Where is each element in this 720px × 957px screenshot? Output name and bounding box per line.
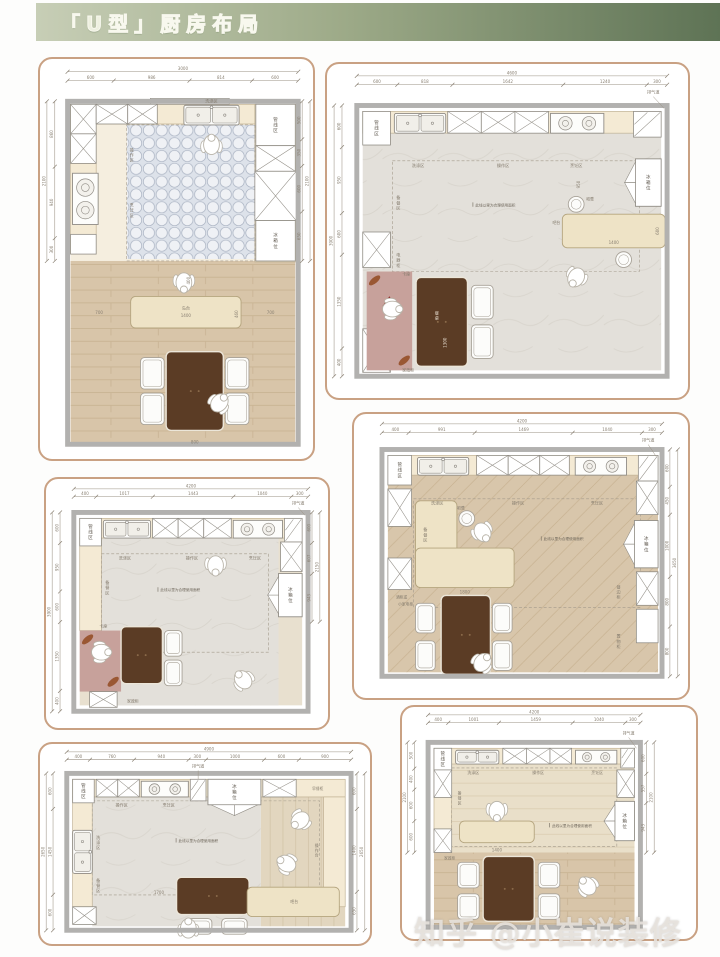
floor-plan-card-2: 管线区冰箱位4600600818164212403003900600950600…: [325, 62, 690, 400]
svg-text:洗涤区: 洗涤区: [205, 97, 217, 103]
svg-text:700: 700: [95, 310, 103, 315]
svg-text:管线区: 管线区: [441, 750, 446, 768]
svg-text:操作台: 操作台: [315, 843, 319, 858]
svg-text:600: 600: [664, 464, 669, 472]
svg-text:991: 991: [438, 427, 446, 432]
svg-text:2100: 2100: [649, 792, 654, 803]
svg-text:1350: 1350: [336, 296, 341, 307]
svg-text:4900: 4900: [204, 746, 215, 751]
floor-plan-5-svg: 管线区冰箱位4900400760940300100060090026506001…: [40, 744, 370, 944]
svg-text:1450: 1450: [47, 846, 52, 857]
svg-text:吧凳: 吧凳: [586, 196, 594, 201]
svg-text:450: 450: [664, 496, 669, 504]
svg-text:3000: 3000: [178, 66, 189, 71]
svg-text:操作区: 操作区: [532, 770, 544, 775]
svg-text:排气道: 排气道: [623, 731, 635, 736]
svg-text:400: 400: [75, 754, 83, 759]
svg-text:2650: 2650: [359, 846, 364, 857]
svg-text:400: 400: [54, 697, 59, 705]
svg-text:备餐区: 备餐区: [96, 877, 100, 893]
svg-text:置物柜: 置物柜: [617, 633, 621, 649]
svg-text:1000: 1000: [230, 754, 241, 759]
svg-text:3900: 3900: [328, 235, 333, 246]
svg-text:650: 650: [297, 232, 302, 240]
svg-text:烹饪区: 烹饪区: [591, 770, 603, 775]
svg-text:600: 600: [306, 523, 311, 531]
svg-text:500: 500: [409, 751, 414, 759]
watermark: 知乎 @小崔说装修: [414, 908, 682, 953]
svg-text:冰箱位: 冰箱位: [644, 535, 649, 553]
floor-plan-6-svg: 管线区冰箱位4200400100114591040300210050040060…: [402, 707, 696, 939]
svg-text:3900: 3900: [47, 606, 52, 617]
svg-text:400: 400: [391, 427, 399, 432]
svg-text:700: 700: [267, 310, 275, 315]
svg-text:600: 600: [641, 754, 646, 762]
svg-text:家政柜: 家政柜: [402, 367, 414, 372]
svg-text:吧台: 吧台: [290, 899, 298, 904]
svg-text:排气道: 排气道: [647, 89, 659, 95]
svg-text:岛台: 岛台: [182, 304, 190, 310]
svg-text:冰箱位: 冰箱位: [273, 232, 278, 250]
svg-text:800: 800: [191, 439, 199, 444]
svg-text:小家电柜: 小家电柜: [398, 601, 413, 606]
svg-text:此线以里为合理使用面积: 此线以里为合理使用面积: [160, 587, 200, 592]
svg-text:1350: 1350: [54, 651, 59, 662]
svg-text:备餐区: 备餐区: [105, 579, 109, 595]
svg-text:1001: 1001: [468, 717, 479, 722]
svg-text:冰箱位: 冰箱位: [232, 783, 237, 801]
svg-text:1017: 1017: [119, 491, 130, 496]
svg-text:冰箱位: 冰箱位: [288, 586, 293, 604]
svg-text:400: 400: [409, 775, 414, 783]
svg-text:460: 460: [234, 310, 239, 318]
svg-text:卡座: 卡座: [402, 271, 410, 276]
svg-text:860: 860: [49, 130, 54, 138]
svg-text:3650: 3650: [672, 557, 677, 568]
floor-plan-card-5: 管线区冰箱位4900400760940300100060090026506001…: [38, 742, 372, 946]
floor-plan-2-svg: 管线区冰箱位4600600818164212403003900600950600…: [327, 64, 688, 398]
svg-text:操作区: 操作区: [512, 500, 524, 506]
svg-text:300: 300: [49, 245, 54, 253]
svg-text:1459: 1459: [531, 717, 542, 722]
floor-plan-card-1: 管线区冰箱位3000600986814600210086094030050035…: [38, 57, 315, 461]
svg-text:400: 400: [434, 717, 442, 722]
svg-text:4200: 4200: [186, 483, 197, 488]
floor-plan-card-6: 管线区冰箱位4200400100114591040300210050040060…: [400, 705, 698, 941]
svg-text:940: 940: [158, 754, 166, 759]
svg-text:500: 500: [297, 116, 302, 124]
svg-text:600: 600: [87, 75, 95, 80]
svg-text:800: 800: [664, 647, 669, 655]
svg-text:此线以里为合理使用面积: 此线以里为合理使用面积: [475, 202, 515, 207]
svg-text:950: 950: [336, 176, 341, 184]
svg-text:管线区: 管线区: [397, 461, 402, 479]
svg-text:管线区: 管线区: [88, 523, 93, 541]
svg-text:2650: 2650: [41, 846, 46, 857]
svg-text:1469: 1469: [519, 427, 530, 432]
svg-text:洗涤区: 洗涤区: [431, 500, 443, 506]
svg-text:600: 600: [271, 75, 279, 80]
svg-text:家政柜: 家政柜: [444, 855, 455, 860]
svg-text:洗涤区: 洗涤区: [467, 770, 479, 775]
svg-text:600: 600: [409, 832, 414, 840]
svg-text:600: 600: [47, 787, 52, 795]
svg-text:操作区: 操作区: [497, 162, 509, 168]
svg-text:300: 300: [648, 427, 656, 432]
svg-text:600: 600: [54, 602, 59, 610]
svg-text:吧凳: 吧凳: [457, 506, 465, 511]
svg-text:烹饪区: 烹饪区: [591, 500, 603, 506]
svg-text:此线以里为合理使用面积: 此线以里为合理使用面积: [179, 838, 219, 843]
svg-text:650: 650: [351, 907, 356, 915]
floor-plan-3-svg: 管线区冰箱位4200400101714431040300390060095060…: [46, 479, 328, 728]
svg-text:940: 940: [49, 198, 54, 206]
svg-text:900: 900: [321, 754, 329, 759]
svg-text:600: 600: [655, 227, 660, 235]
floor-plan-1-svg: 管线区冰箱位3000600986814600210086094030050035…: [40, 59, 313, 459]
svg-text:400: 400: [336, 358, 341, 366]
svg-text:557: 557: [641, 784, 646, 792]
svg-text:760: 760: [108, 754, 116, 759]
svg-text:600: 600: [278, 754, 286, 759]
svg-text:1400: 1400: [492, 848, 503, 853]
svg-text:备餐区: 备餐区: [458, 791, 462, 806]
svg-text:烹饪区: 烹饪区: [570, 162, 582, 168]
svg-text:卡座: 卡座: [99, 624, 107, 629]
svg-text:烹饪区: 烹饪区: [163, 802, 175, 808]
svg-text:此线以里为合理使用面积: 此线以里为合理使用面积: [552, 823, 592, 828]
floor-plan-4-svg: 管线区冰箱位4200400991146910403006004501000800…: [354, 414, 688, 698]
svg-text:986: 986: [148, 75, 156, 80]
svg-text:洗涤区: 洗涤区: [96, 834, 100, 850]
svg-text:607: 607: [306, 554, 311, 562]
svg-text:冰箱位: 冰箱位: [622, 812, 627, 830]
svg-text:排气道: 排气道: [292, 500, 304, 506]
svg-text:1700: 1700: [154, 890, 165, 895]
svg-text:管线区: 管线区: [273, 116, 278, 134]
svg-text:洗涤区: 洗涤区: [119, 555, 131, 561]
svg-text:600: 600: [336, 122, 341, 130]
svg-text:950: 950: [54, 563, 59, 571]
svg-text:300: 300: [653, 79, 661, 84]
svg-text:818: 818: [421, 79, 429, 84]
svg-text:1240: 1240: [600, 79, 611, 84]
svg-text:1400: 1400: [181, 313, 192, 318]
svg-text:814: 814: [217, 75, 225, 80]
svg-text:400: 400: [186, 276, 191, 284]
svg-text:排气道: 排气道: [642, 437, 654, 443]
svg-text:800: 800: [664, 597, 669, 605]
floor-plan-card-3: 管线区冰箱位4200400101714431040300390060095060…: [44, 477, 330, 730]
svg-text:管线区: 管线区: [81, 782, 86, 800]
svg-text:350: 350: [297, 148, 302, 156]
svg-text:300: 300: [629, 717, 637, 722]
svg-text:早餐柜: 早餐柜: [312, 786, 323, 791]
svg-text:1040: 1040: [594, 717, 605, 722]
svg-text:600: 600: [336, 230, 341, 238]
svg-text:943: 943: [641, 823, 646, 831]
svg-text:950: 950: [576, 180, 581, 188]
svg-text:此线以里为合理使用面积: 此线以里为合理使用面积: [544, 536, 584, 541]
svg-text:1000: 1000: [664, 540, 669, 551]
svg-text:家政柜: 家政柜: [127, 698, 139, 703]
svg-text:1300: 1300: [443, 337, 448, 348]
svg-text:2100: 2100: [304, 176, 309, 187]
svg-text:600: 600: [409, 801, 414, 809]
svg-text:1443: 1443: [188, 491, 199, 496]
svg-text:600: 600: [351, 787, 356, 795]
svg-text:吧台: 吧台: [552, 220, 560, 225]
svg-text:1040: 1040: [257, 491, 268, 496]
svg-text:备餐区: 备餐区: [423, 526, 427, 542]
svg-text:600: 600: [297, 184, 302, 192]
svg-text:1642: 1642: [503, 79, 514, 84]
svg-text:300: 300: [193, 754, 201, 759]
svg-text:4600: 4600: [507, 70, 518, 75]
svg-text:1040: 1040: [602, 427, 613, 432]
floor-plan-card-4: 管线区冰箱位4200400991146910403006004501000800…: [352, 412, 690, 700]
svg-text:600: 600: [47, 908, 52, 916]
svg-text:1400: 1400: [609, 240, 620, 245]
svg-text:2100: 2100: [402, 792, 407, 803]
svg-text:管线区: 管线区: [374, 119, 379, 137]
svg-text:1800: 1800: [460, 589, 471, 594]
svg-text:2150: 2150: [314, 562, 319, 573]
title-banner: 「U型」厨房布局: [36, 3, 720, 41]
svg-text:餐桌: 餐桌: [435, 309, 439, 320]
svg-text:300: 300: [296, 491, 304, 496]
svg-text:餐边柜: 餐边柜: [617, 583, 621, 599]
svg-text:400: 400: [81, 491, 89, 496]
svg-text:4200: 4200: [529, 709, 540, 714]
svg-text:排气道: 排气道: [192, 763, 204, 769]
svg-text:操作区: 操作区: [130, 146, 134, 162]
svg-text:4200: 4200: [517, 418, 528, 423]
svg-text:洗涤区: 洗涤区: [412, 162, 424, 168]
page: 「U型」厨房布局 管线区冰箱位3000600986814600210086094…: [0, 0, 720, 957]
svg-text:烹饪区: 烹饪区: [249, 555, 261, 561]
svg-text:600: 600: [373, 79, 381, 84]
svg-text:操作区: 操作区: [186, 555, 198, 561]
svg-text:2100: 2100: [41, 176, 46, 187]
svg-text:烹饪区: 烹饪区: [130, 202, 134, 218]
svg-text:酒柜或: 酒柜或: [396, 594, 407, 599]
svg-text:943: 943: [306, 593, 311, 601]
svg-text:600: 600: [54, 523, 59, 531]
svg-text:操作区: 操作区: [115, 802, 127, 808]
page-title: 「U型」厨房布局: [60, 8, 264, 37]
svg-text:冰箱位: 冰箱位: [646, 173, 651, 191]
svg-text:1400: 1400: [351, 845, 356, 856]
